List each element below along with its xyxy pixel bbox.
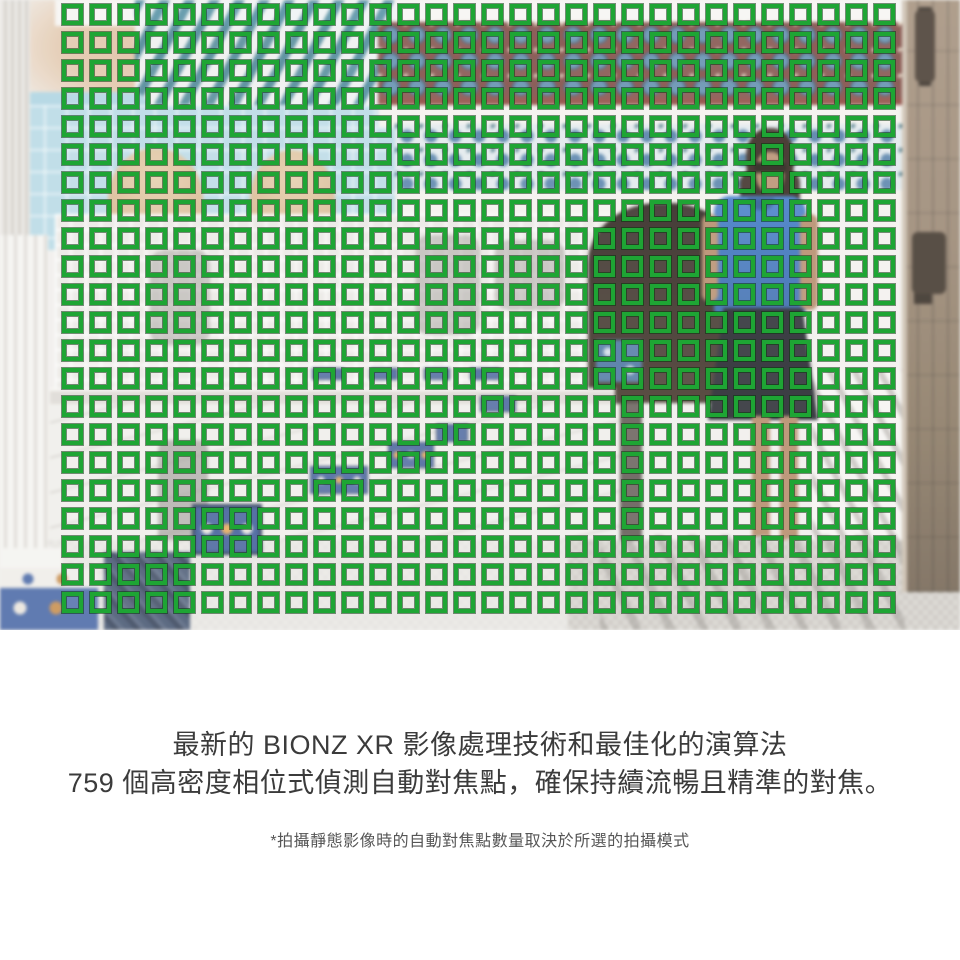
af-point [454, 4, 475, 25]
af-point [314, 340, 335, 361]
af-point [62, 396, 83, 417]
af-point [762, 340, 783, 361]
af-point [174, 144, 195, 165]
af-point [342, 200, 363, 221]
af-point [678, 396, 699, 417]
af-point [650, 144, 671, 165]
af-point [818, 200, 839, 221]
af-point [538, 200, 559, 221]
af-point [846, 340, 867, 361]
af-point [426, 172, 447, 193]
af-point [230, 32, 251, 53]
af-point [566, 256, 587, 277]
af-point [398, 340, 419, 361]
af-point [874, 32, 895, 53]
af-point [230, 396, 251, 417]
af-point [594, 228, 615, 249]
af-point [622, 396, 643, 417]
af-point [426, 228, 447, 249]
af-point [90, 284, 111, 305]
af-point [398, 32, 419, 53]
af-point [566, 424, 587, 445]
af-point [90, 116, 111, 137]
af-point [734, 424, 755, 445]
af-point [790, 172, 811, 193]
af-point [342, 396, 363, 417]
af-point [90, 256, 111, 277]
af-point [286, 32, 307, 53]
af-point [706, 312, 727, 333]
af-point [286, 592, 307, 613]
af-point [230, 340, 251, 361]
af-point [762, 60, 783, 81]
af-point [538, 256, 559, 277]
af-point [510, 88, 531, 109]
af-point [622, 368, 643, 389]
af-point [230, 284, 251, 305]
af-point [286, 88, 307, 109]
af-point [678, 284, 699, 305]
af-point [230, 508, 251, 529]
af-point [846, 284, 867, 305]
af-point [762, 32, 783, 53]
af-point [342, 228, 363, 249]
af-point [118, 536, 139, 557]
af-point [146, 564, 167, 585]
headline-line-2: 759 個高密度相位式偵測自動對焦點，確保持續流暢且精準的對焦。 [0, 764, 960, 802]
af-point [650, 452, 671, 473]
af-point [454, 256, 475, 277]
af-point [90, 32, 111, 53]
af-point [818, 396, 839, 417]
af-point [370, 200, 391, 221]
af-point [174, 284, 195, 305]
af-point [762, 144, 783, 165]
af-point [426, 508, 447, 529]
af-point [594, 312, 615, 333]
af-point [398, 312, 419, 333]
af-point [90, 564, 111, 585]
af-point [566, 508, 587, 529]
af-point [510, 340, 531, 361]
af-point [594, 480, 615, 501]
af-point [706, 256, 727, 277]
af-point [874, 452, 895, 473]
af-point [678, 480, 699, 501]
af-point [62, 480, 83, 501]
af-point [734, 200, 755, 221]
af-point [174, 256, 195, 277]
af-point [538, 228, 559, 249]
af-point [118, 396, 139, 417]
af-point [846, 116, 867, 137]
af-point [202, 284, 223, 305]
af-point [510, 60, 531, 81]
af-point [118, 452, 139, 473]
af-point [174, 424, 195, 445]
af-point [594, 144, 615, 165]
af-point [706, 480, 727, 501]
af-point [706, 564, 727, 585]
af-point [622, 32, 643, 53]
af-point [594, 564, 615, 585]
af-point [706, 368, 727, 389]
af-point [846, 368, 867, 389]
af-point [118, 256, 139, 277]
af-point [342, 144, 363, 165]
af-point [650, 32, 671, 53]
af-point [258, 284, 279, 305]
af-point [118, 508, 139, 529]
af-point [62, 88, 83, 109]
af-point [146, 284, 167, 305]
af-point [398, 172, 419, 193]
af-point [482, 4, 503, 25]
af-point [370, 452, 391, 473]
af-point [398, 88, 419, 109]
af-point [874, 396, 895, 417]
af-point [230, 592, 251, 613]
af-point [258, 480, 279, 501]
af-point [538, 564, 559, 585]
af-point [454, 536, 475, 557]
af-point [734, 172, 755, 193]
af-point [594, 4, 615, 25]
af-point [734, 340, 755, 361]
af-point [314, 228, 335, 249]
af-point [90, 312, 111, 333]
af-point [650, 116, 671, 137]
af-point [314, 60, 335, 81]
af-point [202, 32, 223, 53]
af-point [202, 480, 223, 501]
af-point [118, 480, 139, 501]
af-point [202, 368, 223, 389]
af-point [846, 144, 867, 165]
af-point [734, 564, 755, 585]
af-point [790, 60, 811, 81]
af-point [454, 368, 475, 389]
af-point [594, 508, 615, 529]
af-point [482, 480, 503, 501]
af-point [818, 564, 839, 585]
af-point [230, 256, 251, 277]
af-point [566, 480, 587, 501]
af-point [90, 340, 111, 361]
af-point [370, 88, 391, 109]
af-point [846, 508, 867, 529]
af-point [538, 368, 559, 389]
af-point [314, 116, 335, 137]
af-point [286, 340, 307, 361]
af-point [342, 4, 363, 25]
af-point [398, 592, 419, 613]
af-point [734, 60, 755, 81]
af-point [594, 256, 615, 277]
af-point [650, 340, 671, 361]
af-point [482, 312, 503, 333]
af-point [818, 60, 839, 81]
af-point [398, 396, 419, 417]
af-point [790, 480, 811, 501]
af-point [258, 88, 279, 109]
af-point [258, 508, 279, 529]
af-point [762, 452, 783, 473]
af-point [230, 564, 251, 585]
af-point [454, 284, 475, 305]
af-point [538, 284, 559, 305]
af-point [874, 228, 895, 249]
af-point [482, 200, 503, 221]
af-point [426, 340, 447, 361]
af-point [510, 368, 531, 389]
af-point [454, 592, 475, 613]
af-point [370, 424, 391, 445]
af-point [678, 256, 699, 277]
af-point [342, 116, 363, 137]
af-point [482, 452, 503, 473]
af-point [538, 340, 559, 361]
af-point [258, 200, 279, 221]
caption-section: 最新的 BIONZ XR 影像處理技術和最佳化的演算法 759 個高密度相位式偵… [0, 630, 960, 851]
af-point [370, 32, 391, 53]
af-point [706, 452, 727, 473]
af-point [594, 424, 615, 445]
af-point [258, 144, 279, 165]
af-point [650, 508, 671, 529]
af-point [146, 592, 167, 613]
af-point [146, 60, 167, 81]
af-point [790, 564, 811, 585]
af-point [454, 508, 475, 529]
af-point [398, 116, 419, 137]
af-point [62, 60, 83, 81]
af-point [426, 536, 447, 557]
af-point [426, 144, 447, 165]
af-point [762, 592, 783, 613]
af-point [202, 592, 223, 613]
af-point [286, 452, 307, 473]
af-point [258, 396, 279, 417]
af-point [426, 116, 447, 137]
af-point [230, 88, 251, 109]
af-point [90, 368, 111, 389]
af-point [342, 256, 363, 277]
af-point [538, 592, 559, 613]
af-point [90, 4, 111, 25]
af-point [510, 172, 531, 193]
af-point [258, 368, 279, 389]
af-point [538, 60, 559, 81]
af-point [174, 200, 195, 221]
af-point [510, 508, 531, 529]
af-point [594, 452, 615, 473]
af-point [790, 32, 811, 53]
af-point [874, 60, 895, 81]
af-point [146, 368, 167, 389]
af-point [398, 452, 419, 473]
af-point [314, 256, 335, 277]
af-point [818, 88, 839, 109]
af-point [678, 564, 699, 585]
af-point [398, 424, 419, 445]
footnote: *拍攝靜態影像時的自動對焦點數量取決於所選的拍攝模式 [0, 827, 960, 851]
af-point [762, 564, 783, 585]
af-point [258, 172, 279, 193]
af-point [510, 312, 531, 333]
af-point [622, 172, 643, 193]
af-point [622, 116, 643, 137]
af-point [678, 144, 699, 165]
af-point [230, 172, 251, 193]
af-point [762, 228, 783, 249]
af-point [818, 508, 839, 529]
af-point [510, 536, 531, 557]
af-point [510, 452, 531, 473]
af-point [790, 424, 811, 445]
af-point [874, 312, 895, 333]
af-point [706, 88, 727, 109]
af-point [874, 424, 895, 445]
af-point [734, 4, 755, 25]
af-point [482, 256, 503, 277]
af-point [734, 480, 755, 501]
af-point [202, 536, 223, 557]
af-point [706, 200, 727, 221]
af-point [650, 88, 671, 109]
af-point [426, 592, 447, 613]
af-point [650, 312, 671, 333]
af-point [454, 480, 475, 501]
af-point [482, 396, 503, 417]
af-point [594, 396, 615, 417]
af-point [146, 172, 167, 193]
af-point [258, 592, 279, 613]
af-point [482, 60, 503, 81]
af-point [846, 480, 867, 501]
af-point [258, 60, 279, 81]
af-point [286, 564, 307, 585]
af-point [202, 424, 223, 445]
af-point [118, 284, 139, 305]
af-point [426, 424, 447, 445]
af-point [62, 172, 83, 193]
af-point [482, 564, 503, 585]
af-point [818, 368, 839, 389]
af-point [398, 284, 419, 305]
af-point [426, 312, 447, 333]
af-point [622, 480, 643, 501]
af-point [286, 536, 307, 557]
af-point [790, 340, 811, 361]
af-point [454, 116, 475, 137]
af-point [706, 396, 727, 417]
af-point [90, 172, 111, 193]
af-point [846, 396, 867, 417]
af-point [146, 144, 167, 165]
af-point [566, 340, 587, 361]
af-point [538, 88, 559, 109]
af-point [426, 88, 447, 109]
af-point [706, 172, 727, 193]
af-point [678, 4, 699, 25]
af-point [650, 228, 671, 249]
af-point [566, 396, 587, 417]
af-point [566, 284, 587, 305]
af-point [230, 424, 251, 445]
af-point [258, 116, 279, 137]
af-point [846, 32, 867, 53]
af-point [650, 424, 671, 445]
af-point [370, 4, 391, 25]
af-point [118, 144, 139, 165]
af-point [202, 200, 223, 221]
af-point [90, 396, 111, 417]
af-point [818, 424, 839, 445]
af-point [818, 312, 839, 333]
af-point [622, 284, 643, 305]
af-point [454, 88, 475, 109]
af-point [678, 172, 699, 193]
af-point [622, 228, 643, 249]
af-point [874, 172, 895, 193]
af-point [174, 480, 195, 501]
af-point [818, 144, 839, 165]
af-point [342, 480, 363, 501]
af-point [62, 4, 83, 25]
af-point [286, 144, 307, 165]
af-point [566, 172, 587, 193]
headline-line-1: 最新的 BIONZ XR 影像處理技術和最佳化的演算法 [0, 726, 960, 764]
af-point [734, 256, 755, 277]
af-point [454, 228, 475, 249]
af-point [482, 368, 503, 389]
af-point [874, 116, 895, 137]
af-point [650, 172, 671, 193]
af-point [314, 4, 335, 25]
af-point [734, 228, 755, 249]
af-point [370, 116, 391, 137]
af-point [762, 396, 783, 417]
af-point [790, 228, 811, 249]
af-point [678, 536, 699, 557]
af-point [370, 256, 391, 277]
af-point [314, 452, 335, 473]
af-point [734, 536, 755, 557]
af-point [454, 312, 475, 333]
af-point [230, 228, 251, 249]
af-point [286, 256, 307, 277]
af-point [286, 312, 307, 333]
af-point [146, 228, 167, 249]
af-point [286, 368, 307, 389]
af-point [482, 32, 503, 53]
af-point [734, 312, 755, 333]
af-point [706, 228, 727, 249]
af-point [118, 172, 139, 193]
af-point [790, 144, 811, 165]
af-point [790, 396, 811, 417]
af-point [482, 172, 503, 193]
af-point [118, 32, 139, 53]
af-point [790, 256, 811, 277]
af-point [342, 32, 363, 53]
af-point [174, 172, 195, 193]
af-point [286, 172, 307, 193]
af-point [510, 564, 531, 585]
af-point [510, 200, 531, 221]
af-point [594, 536, 615, 557]
